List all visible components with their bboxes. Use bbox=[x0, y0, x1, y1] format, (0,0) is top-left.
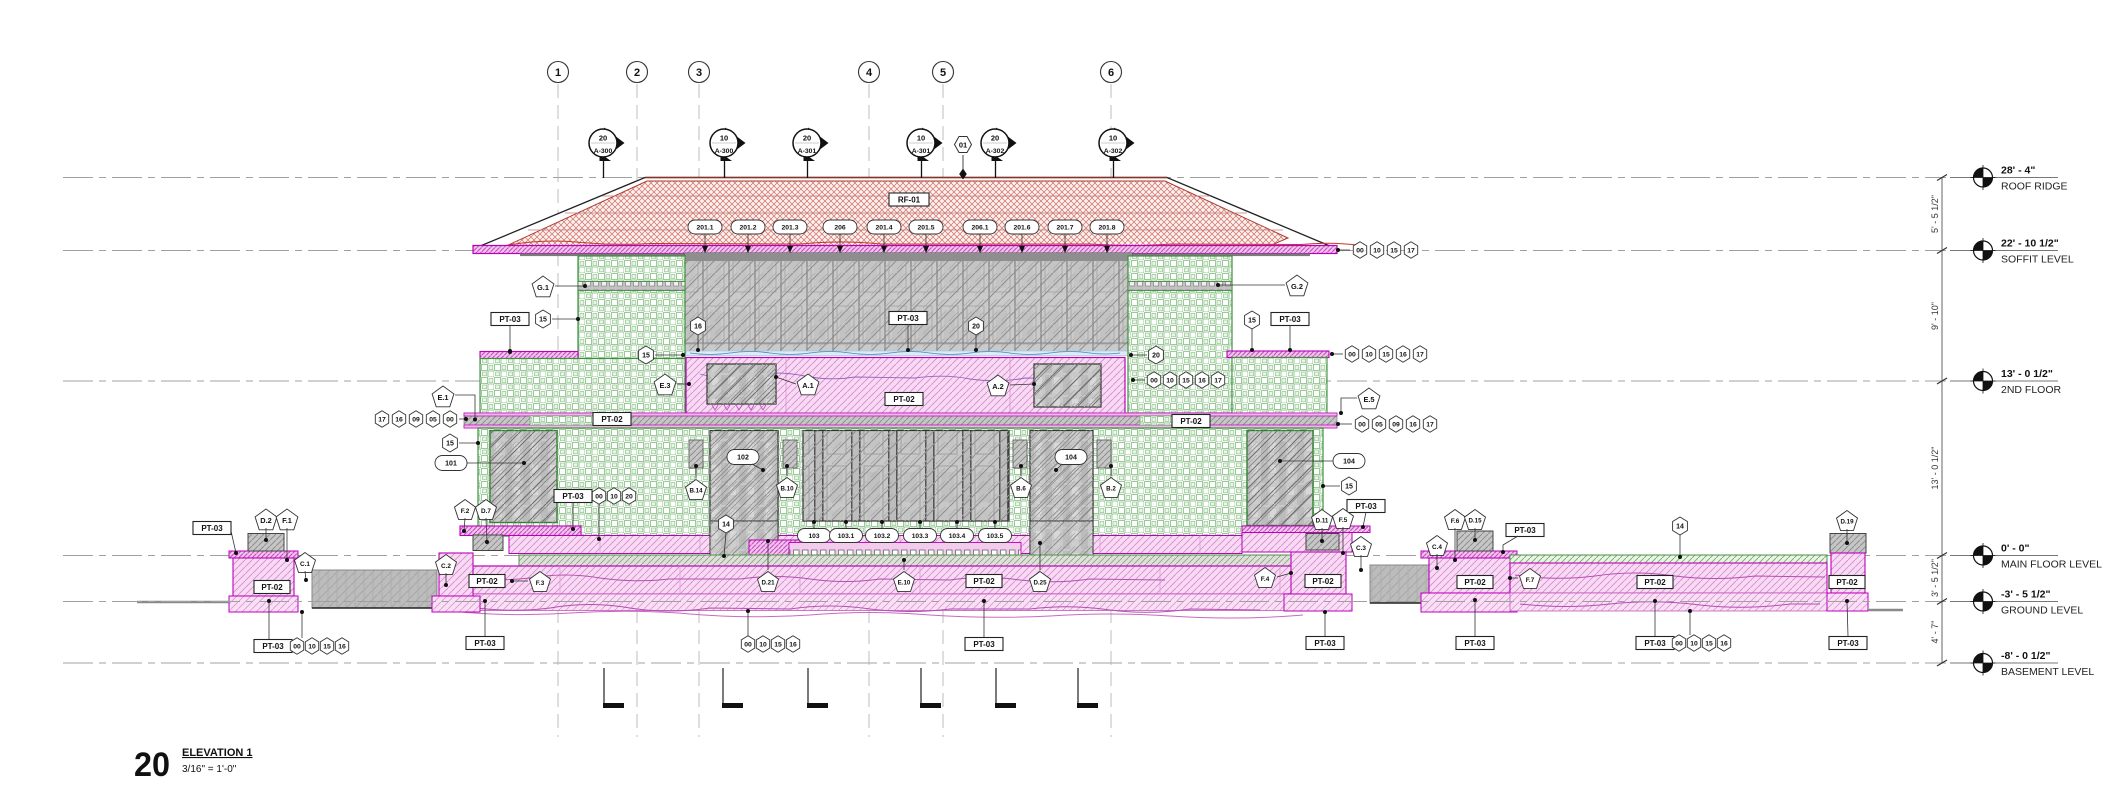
svg-text:PT-03: PT-03 bbox=[1837, 639, 1859, 648]
svg-text:PT-02: PT-02 bbox=[476, 577, 498, 586]
svg-text:PT-02: PT-02 bbox=[973, 577, 995, 586]
svg-text:F.1: F.1 bbox=[282, 516, 292, 525]
svg-text:16: 16 bbox=[1399, 351, 1407, 358]
svg-text:F.6: F.6 bbox=[1451, 518, 1460, 525]
svg-text:15: 15 bbox=[774, 641, 782, 648]
svg-text:A-301: A-301 bbox=[798, 148, 817, 155]
svg-text:104: 104 bbox=[1343, 459, 1355, 466]
svg-text:PT-02: PT-02 bbox=[261, 583, 283, 592]
svg-text:10: 10 bbox=[1109, 134, 1117, 143]
svg-text:D.25: D.25 bbox=[1033, 580, 1047, 587]
svg-text:201.2: 201.2 bbox=[739, 224, 756, 231]
svg-text:17: 17 bbox=[1407, 247, 1415, 254]
svg-text:01: 01 bbox=[959, 140, 967, 149]
svg-text:C.1: C.1 bbox=[300, 561, 310, 568]
svg-text:00: 00 bbox=[1150, 377, 1158, 384]
svg-text:15: 15 bbox=[1382, 351, 1390, 358]
svg-text:F.3: F.3 bbox=[536, 580, 545, 587]
svg-text:16: 16 bbox=[338, 643, 346, 650]
svg-text:D.11: D.11 bbox=[1316, 518, 1329, 525]
svg-text:206.1: 206.1 bbox=[971, 224, 988, 231]
svg-text:103.4: 103.4 bbox=[949, 533, 966, 540]
svg-text:103.5: 103.5 bbox=[987, 533, 1004, 540]
svg-text:15: 15 bbox=[1705, 640, 1713, 647]
svg-text:RF-01: RF-01 bbox=[898, 195, 921, 204]
svg-text:C.3: C.3 bbox=[1356, 545, 1366, 552]
svg-text:A-302: A-302 bbox=[1104, 148, 1123, 155]
svg-text:PT-02: PT-02 bbox=[1180, 417, 1202, 426]
svg-text:15: 15 bbox=[323, 643, 331, 650]
svg-text:PT-03: PT-03 bbox=[562, 492, 584, 501]
svg-text:103: 103 bbox=[808, 533, 819, 540]
svg-text:20: 20 bbox=[625, 493, 633, 500]
svg-text:10: 10 bbox=[917, 134, 925, 143]
svg-text:20: 20 bbox=[1152, 353, 1160, 360]
svg-text:201.8: 201.8 bbox=[1098, 224, 1115, 231]
svg-text:SOFFIT LEVEL: SOFFIT LEVEL bbox=[2001, 254, 2074, 266]
svg-text:PT-03: PT-03 bbox=[201, 524, 223, 533]
svg-text:201.7: 201.7 bbox=[1056, 224, 1073, 231]
svg-text:00: 00 bbox=[744, 641, 752, 648]
svg-text:15: 15 bbox=[446, 441, 454, 448]
svg-text:ROOF RIDGE: ROOF RIDGE bbox=[2001, 181, 2068, 193]
svg-text:1: 1 bbox=[555, 67, 561, 79]
svg-text:PT-03: PT-03 bbox=[499, 315, 521, 324]
svg-text:B.10: B.10 bbox=[780, 486, 794, 493]
svg-text:20: 20 bbox=[803, 134, 811, 143]
svg-text:10: 10 bbox=[1166, 377, 1174, 384]
svg-text:103.1: 103.1 bbox=[838, 533, 855, 540]
svg-text:17: 17 bbox=[1214, 377, 1222, 384]
svg-text:5: 5 bbox=[940, 67, 946, 79]
svg-text:16: 16 bbox=[789, 641, 797, 648]
svg-text:PT-03: PT-03 bbox=[1644, 639, 1666, 648]
svg-text:16: 16 bbox=[1198, 377, 1206, 384]
svg-text:14: 14 bbox=[722, 522, 730, 529]
svg-text:-8' - 0 1/2": -8' - 0 1/2" bbox=[2001, 650, 2051, 662]
svg-text:15: 15 bbox=[1248, 318, 1256, 325]
svg-text:A-301: A-301 bbox=[912, 148, 931, 155]
svg-text:20: 20 bbox=[972, 324, 980, 331]
svg-text:PT-03: PT-03 bbox=[1355, 502, 1377, 511]
svg-text:101: 101 bbox=[445, 461, 457, 468]
svg-text:16: 16 bbox=[1409, 421, 1417, 428]
svg-text:17: 17 bbox=[1426, 421, 1434, 428]
svg-text:10: 10 bbox=[759, 641, 767, 648]
svg-text:E.1: E.1 bbox=[437, 393, 448, 402]
svg-text:G.2: G.2 bbox=[1291, 282, 1303, 291]
svg-text:20: 20 bbox=[991, 134, 999, 143]
svg-text:C.4: C.4 bbox=[1432, 544, 1442, 551]
svg-text:BASEMENT LEVEL: BASEMENT LEVEL bbox=[2001, 666, 2094, 678]
svg-text:17: 17 bbox=[378, 416, 386, 423]
svg-text:PT-03: PT-03 bbox=[1279, 315, 1301, 324]
svg-text:10: 10 bbox=[1373, 247, 1381, 254]
svg-text:3: 3 bbox=[696, 67, 702, 79]
svg-text:05: 05 bbox=[429, 416, 437, 423]
svg-text:B.6: B.6 bbox=[1016, 486, 1026, 493]
svg-text:9' - 10": 9' - 10" bbox=[1930, 302, 1940, 330]
svg-text:13' - 0 1/2": 13' - 0 1/2" bbox=[2001, 368, 2053, 380]
svg-text:201.1: 201.1 bbox=[696, 224, 713, 231]
svg-text:E.10: E.10 bbox=[898, 580, 911, 587]
svg-text:09: 09 bbox=[412, 416, 420, 423]
svg-text:201.4: 201.4 bbox=[875, 224, 892, 231]
svg-text:B.14: B.14 bbox=[689, 488, 703, 495]
svg-text:10: 10 bbox=[1690, 640, 1698, 647]
svg-text:PT-03: PT-03 bbox=[1314, 639, 1336, 648]
svg-text:F.2: F.2 bbox=[461, 508, 470, 515]
svg-text:G.1: G.1 bbox=[537, 283, 549, 292]
svg-text:PT-03: PT-03 bbox=[897, 314, 919, 323]
svg-text:20: 20 bbox=[599, 134, 607, 143]
svg-text:103.2: 103.2 bbox=[874, 533, 891, 540]
svg-text:4' - 7": 4' - 7" bbox=[1930, 621, 1940, 644]
svg-text:15: 15 bbox=[1390, 247, 1398, 254]
svg-text:PT-03: PT-03 bbox=[1514, 526, 1536, 535]
svg-text:00: 00 bbox=[1356, 247, 1364, 254]
svg-text:PT-03: PT-03 bbox=[474, 639, 496, 648]
svg-text:05: 05 bbox=[1375, 421, 1383, 428]
svg-text:102: 102 bbox=[737, 455, 749, 462]
svg-text:A-300: A-300 bbox=[715, 148, 734, 155]
svg-text:3' - 5 1/2": 3' - 5 1/2" bbox=[1930, 559, 1940, 597]
svg-text:10: 10 bbox=[720, 134, 728, 143]
svg-text:104: 104 bbox=[1065, 455, 1077, 462]
svg-text:PT-03: PT-03 bbox=[973, 640, 995, 649]
svg-text:00: 00 bbox=[1675, 640, 1683, 647]
svg-text:PT-03: PT-03 bbox=[1464, 639, 1486, 648]
svg-text:C.2: C.2 bbox=[441, 563, 451, 570]
svg-text:MAIN FLOOR LEVEL: MAIN FLOOR LEVEL bbox=[2001, 559, 2102, 571]
svg-text:PT-02: PT-02 bbox=[1464, 578, 1486, 587]
svg-text:28' - 4": 28' - 4" bbox=[2001, 165, 2035, 177]
svg-text:15: 15 bbox=[539, 317, 547, 324]
svg-text:3/16" = 1'-0": 3/16" = 1'-0" bbox=[182, 764, 237, 775]
svg-text:206: 206 bbox=[834, 224, 846, 231]
svg-text:22' - 10 1/2": 22' - 10 1/2" bbox=[2001, 238, 2059, 250]
svg-text:A.2: A.2 bbox=[992, 382, 1004, 391]
svg-text:D.19: D.19 bbox=[1840, 519, 1854, 526]
svg-text:09: 09 bbox=[1392, 421, 1400, 428]
svg-text:B.2: B.2 bbox=[1106, 486, 1116, 493]
svg-text:6: 6 bbox=[1108, 67, 1114, 79]
svg-text:2ND FLOOR: 2ND FLOOR bbox=[2001, 384, 2062, 396]
svg-text:00: 00 bbox=[595, 493, 603, 500]
svg-text:F.4: F.4 bbox=[1261, 576, 1270, 583]
svg-text:201.3: 201.3 bbox=[781, 224, 798, 231]
svg-text:PT-02: PT-02 bbox=[893, 395, 915, 404]
svg-text:A-300: A-300 bbox=[594, 148, 613, 155]
svg-text:E.3: E.3 bbox=[659, 381, 670, 390]
svg-text:D.15: D.15 bbox=[1468, 518, 1482, 525]
svg-text:0' - 0": 0' - 0" bbox=[2001, 543, 2030, 555]
svg-text:14: 14 bbox=[1676, 524, 1684, 531]
svg-text:13' - 0 1/2": 13' - 0 1/2" bbox=[1930, 447, 1940, 490]
svg-text:00: 00 bbox=[1348, 351, 1356, 358]
svg-text:201.6: 201.6 bbox=[1013, 224, 1030, 231]
svg-text:10: 10 bbox=[308, 643, 316, 650]
svg-text:16: 16 bbox=[1720, 640, 1728, 647]
svg-text:10: 10 bbox=[610, 493, 618, 500]
svg-text:E.5: E.5 bbox=[1363, 395, 1374, 404]
svg-text:201.5: 201.5 bbox=[917, 224, 934, 231]
svg-text:-3' - 5 1/2": -3' - 5 1/2" bbox=[2001, 589, 2051, 601]
svg-text:PT-03: PT-03 bbox=[262, 642, 284, 651]
svg-text:D.7: D.7 bbox=[481, 508, 491, 515]
svg-text:A-302: A-302 bbox=[986, 148, 1005, 155]
svg-text:16: 16 bbox=[395, 416, 403, 423]
svg-text:PT-02: PT-02 bbox=[1312, 577, 1334, 586]
svg-text:5' - 5 1/2": 5' - 5 1/2" bbox=[1930, 195, 1940, 233]
svg-text:00: 00 bbox=[1358, 421, 1366, 428]
svg-text:PT-02: PT-02 bbox=[601, 415, 623, 424]
svg-text:103.3: 103.3 bbox=[912, 533, 929, 540]
svg-text:16: 16 bbox=[694, 324, 702, 331]
svg-text:D.2: D.2 bbox=[260, 516, 272, 525]
svg-text:10: 10 bbox=[1365, 351, 1373, 358]
svg-text:20: 20 bbox=[134, 746, 170, 784]
svg-text:PT-02: PT-02 bbox=[1644, 578, 1666, 587]
svg-text:15: 15 bbox=[642, 353, 650, 360]
svg-text:F.7: F.7 bbox=[1526, 577, 1535, 584]
svg-text:ELEVATION 1: ELEVATION 1 bbox=[182, 747, 253, 759]
svg-text:15: 15 bbox=[1182, 377, 1190, 384]
svg-text:17: 17 bbox=[1416, 351, 1424, 358]
svg-text:15: 15 bbox=[1345, 484, 1353, 491]
svg-text:PT-02: PT-02 bbox=[1836, 578, 1858, 587]
svg-text:00: 00 bbox=[446, 416, 454, 423]
svg-text:2: 2 bbox=[634, 67, 640, 79]
svg-text:D.21: D.21 bbox=[761, 580, 775, 587]
svg-text:GROUND LEVEL: GROUND LEVEL bbox=[2001, 605, 2083, 617]
svg-text:F.5: F.5 bbox=[1339, 517, 1348, 524]
svg-text:A.1: A.1 bbox=[802, 381, 814, 390]
svg-text:00: 00 bbox=[293, 643, 301, 650]
svg-text:4: 4 bbox=[866, 67, 873, 79]
